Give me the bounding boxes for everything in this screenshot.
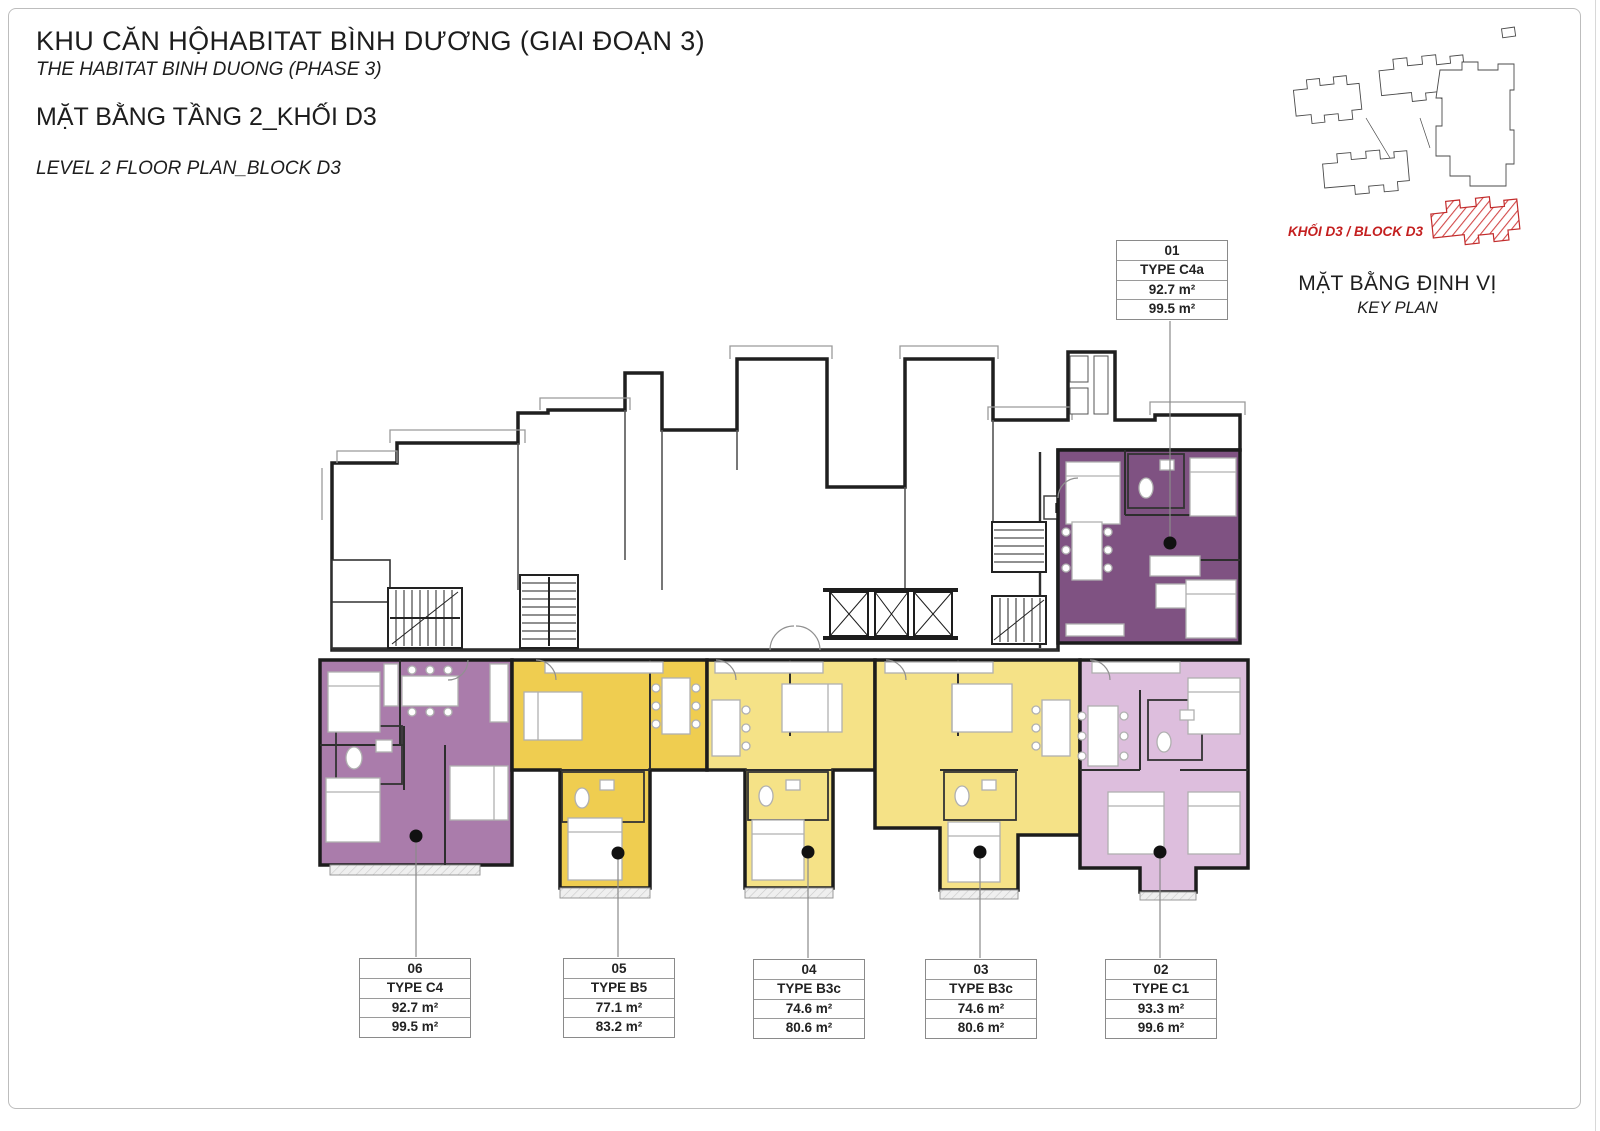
stairwell-mid bbox=[520, 575, 578, 648]
unit-label-02: 02 TYPE C1 93.3 m² 99.6 m² bbox=[1105, 959, 1217, 1039]
key-plan-title: MẶT BẰNG ĐỊNH VỊ KEY PLAN bbox=[1285, 272, 1510, 318]
unit-area-net: 93.3 m² bbox=[1106, 999, 1216, 1019]
unit-area-net: 92.7 m² bbox=[360, 998, 470, 1018]
unit-label-06: 06 TYPE C4 92.7 m² 99.5 m² bbox=[359, 958, 471, 1038]
unit-number: 05 bbox=[564, 959, 674, 978]
unit-label-01: 01 TYPE C4a 92.7 m² 99.5 m² bbox=[1116, 240, 1228, 320]
unit-area-gross: 99.5 m² bbox=[360, 1017, 470, 1037]
unit-area-net: 74.6 m² bbox=[754, 999, 864, 1019]
unit-type: TYPE C1 bbox=[1106, 979, 1216, 999]
stairwell-left bbox=[388, 588, 462, 648]
unit-label-05: 05 TYPE B5 77.1 m² 83.2 m² bbox=[563, 958, 675, 1038]
key-plan-highlight-block bbox=[1430, 194, 1521, 248]
unit-type: TYPE C4 bbox=[360, 978, 470, 998]
unit-number: 06 bbox=[360, 959, 470, 978]
unit-area-gross: 99.5 m² bbox=[1117, 299, 1227, 319]
unit-area-gross: 99.6 m² bbox=[1106, 1018, 1216, 1038]
unit-type: TYPE B5 bbox=[564, 978, 674, 998]
unit-area-net: 77.1 m² bbox=[564, 998, 674, 1018]
unit-type: TYPE C4a bbox=[1117, 260, 1227, 280]
unit-area-net: 92.7 m² bbox=[1117, 280, 1227, 300]
unit-label-04: 04 TYPE B3c 74.6 m² 80.6 m² bbox=[753, 959, 865, 1039]
service-rooms bbox=[332, 560, 390, 648]
unit-number: 02 bbox=[1106, 960, 1216, 979]
key-plan-block-label: KHỐI D3 / BLOCK D3 bbox=[1288, 224, 1438, 239]
unit-area-net: 74.6 m² bbox=[926, 999, 1036, 1019]
elevator-bank bbox=[823, 590, 958, 638]
key-plan-title-vi: MẶT BẰNG ĐỊNH VỊ bbox=[1285, 272, 1510, 296]
key-plan-drawing bbox=[1293, 27, 1521, 248]
unit-label-03: 03 TYPE B3c 74.6 m² 80.6 m² bbox=[925, 959, 1037, 1039]
unit-area-gross: 83.2 m² bbox=[564, 1017, 674, 1037]
unit-number: 01 bbox=[1117, 241, 1227, 260]
unit-number: 04 bbox=[754, 960, 864, 979]
unit-area-gross: 80.6 m² bbox=[926, 1018, 1036, 1038]
unit-area-gross: 80.6 m² bbox=[754, 1018, 864, 1038]
unit-number: 03 bbox=[926, 960, 1036, 979]
key-plan-title-en: KEY PLAN bbox=[1285, 299, 1510, 318]
unit-type: TYPE B3c bbox=[754, 979, 864, 999]
unit-type: TYPE B3c bbox=[926, 979, 1036, 999]
